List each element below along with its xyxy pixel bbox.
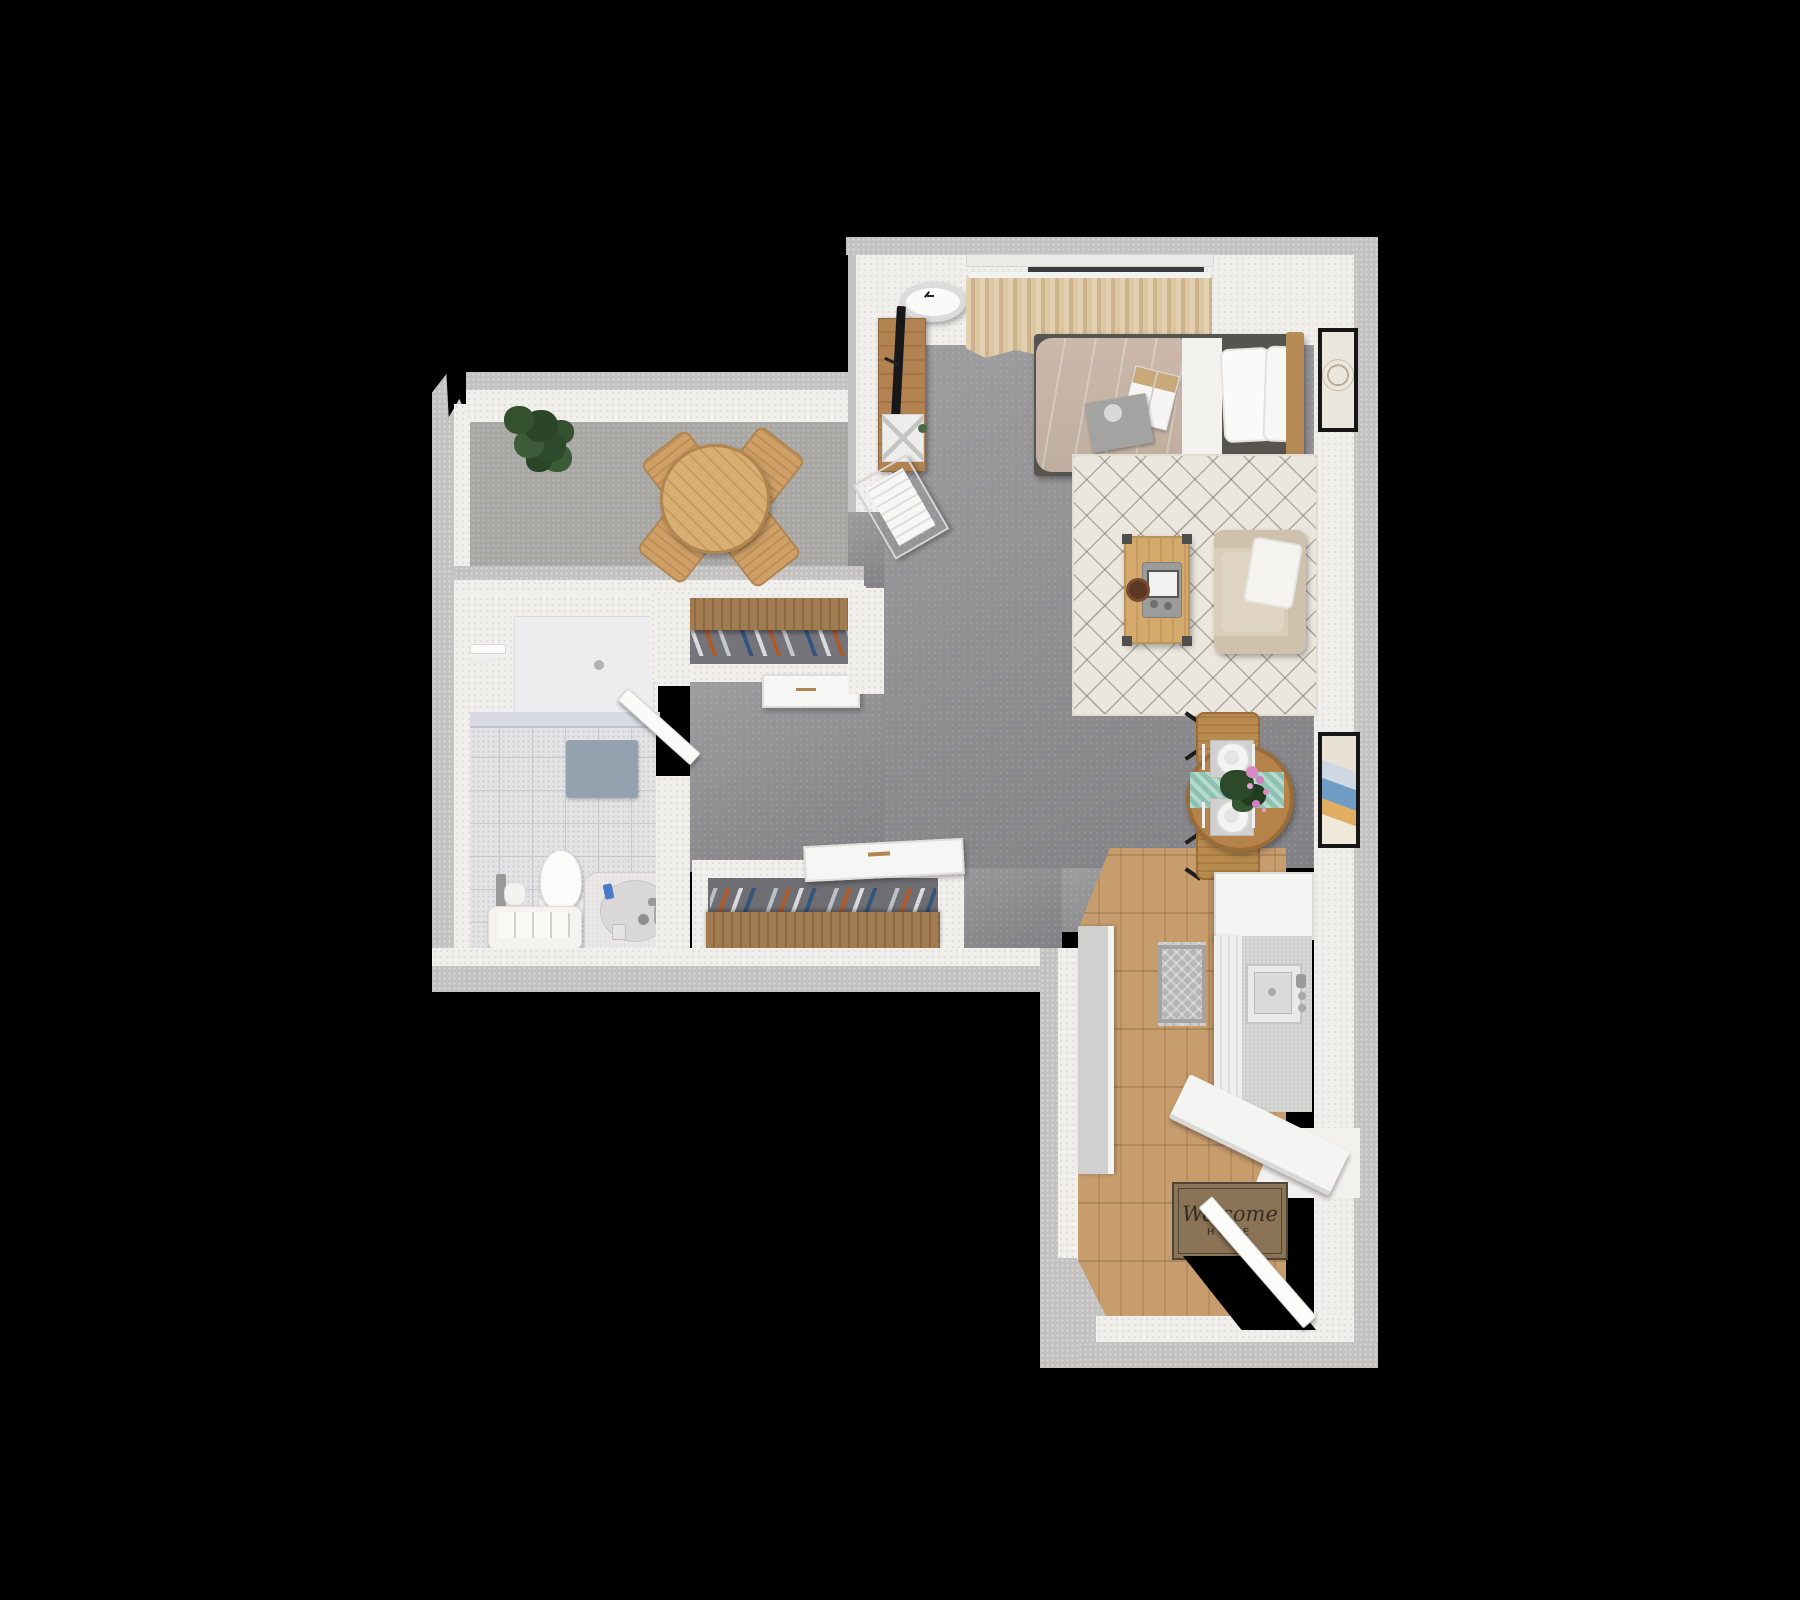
sink-faucet-icon <box>1296 974 1306 988</box>
plant-leaves <box>504 406 534 434</box>
wall-left-wing-bottom-inner <box>432 948 1062 968</box>
closet-south-shelf <box>706 912 940 950</box>
wall-art-bedroom <box>1318 328 1358 432</box>
armchair <box>1214 530 1306 654</box>
wall-bathroom-right-lower <box>656 776 690 952</box>
wall-bathroom-right-upper <box>656 590 690 686</box>
wall-lower-left-inner <box>1058 948 1078 1270</box>
wall-entry-bottom-inner <box>1096 1316 1354 1344</box>
fork-icon <box>1202 802 1205 828</box>
game-console-screen <box>1147 570 1179 598</box>
fork-icon <box>1202 744 1205 770</box>
wall-dining-top-outer <box>466 372 864 390</box>
toothbrush-cup-icon <box>612 924 626 940</box>
dresser-north-handle <box>796 688 816 691</box>
kitchen-countertop <box>1242 936 1312 1112</box>
kitchen-mat <box>1158 942 1206 1026</box>
curtain-rod <box>968 272 1212 279</box>
wall-left-wing-bottom-outer <box>432 966 1062 992</box>
shower-valve-icon <box>470 658 494 664</box>
dining-table <box>660 444 770 554</box>
wall-bedroom-top-outer <box>846 237 1378 255</box>
dresser-north <box>762 674 860 708</box>
toilet-paper-roll-icon <box>504 882 526 906</box>
towel <box>498 912 570 938</box>
game-console-button <box>1164 602 1172 610</box>
table-leg <box>1122 636 1132 646</box>
magazine-gray <box>1084 393 1154 453</box>
table-leg <box>1122 534 1132 544</box>
clock-hand <box>927 295 934 297</box>
plate-inner <box>1224 750 1239 765</box>
knife-icon <box>1252 802 1255 828</box>
sink-handle-icon <box>1298 992 1306 1000</box>
bath-mat <box>566 740 638 798</box>
potted-plant <box>500 404 572 478</box>
sink-handle-icon <box>1298 1004 1306 1012</box>
table-leg <box>1182 636 1192 646</box>
wall-clock <box>900 282 966 322</box>
wall-dining-right-lower <box>848 588 884 694</box>
bed-sheet <box>1182 338 1222 472</box>
shower-head-icon <box>470 644 506 654</box>
kitchen-cabinet-fronts <box>1214 936 1242 1112</box>
toilet-bowl <box>540 850 582 910</box>
wall-art-living <box>1318 732 1360 848</box>
hand-shower-icon <box>638 914 649 925</box>
pink-flowers <box>1246 766 1258 778</box>
wall-lower-left-outer <box>1040 948 1058 1270</box>
wall-entry-bottom-outer <box>1078 1342 1378 1368</box>
kitchen-island-counter <box>1078 926 1114 1174</box>
table-leg <box>1182 534 1192 544</box>
wall-left-inner <box>454 404 470 964</box>
refrigerator <box>1214 872 1314 940</box>
plant-pot <box>528 430 552 452</box>
coaster <box>1126 578 1150 602</box>
window-sill <box>966 254 1214 267</box>
shower-drain <box>594 660 604 670</box>
shower-glass-ledge <box>466 712 660 728</box>
small-plant-icon <box>918 424 927 433</box>
floorplan: Welcome HOME <box>0 0 1800 1600</box>
plate-inner <box>1224 808 1239 823</box>
game-console-button <box>1150 600 1158 608</box>
sink-drain <box>1268 988 1276 996</box>
closet-north-shelf <box>678 598 856 630</box>
